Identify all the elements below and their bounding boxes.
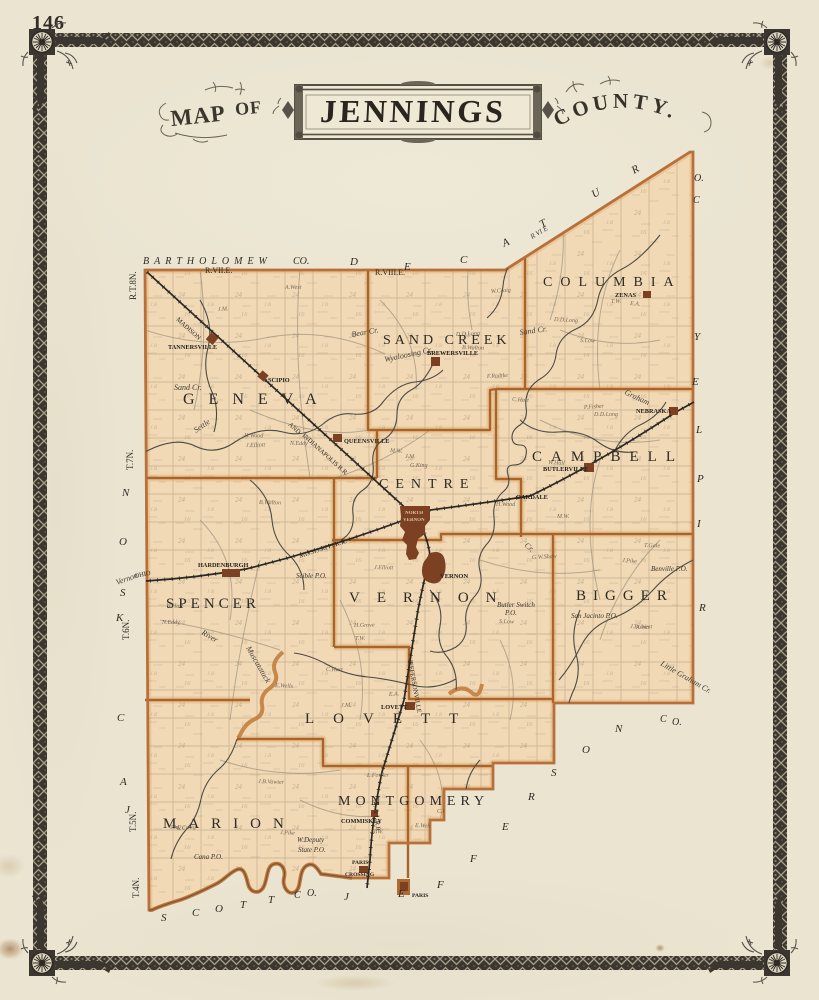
svg-text:VERNON: VERNON bbox=[403, 518, 425, 523]
svg-text:BIGGER: BIGGER bbox=[576, 588, 674, 604]
svg-text:D.D.Long: D.D.Long bbox=[593, 412, 618, 418]
svg-text:BREWERSVILLE: BREWERSVILLE bbox=[427, 350, 478, 357]
svg-text:SCIPIO: SCIPIO bbox=[268, 377, 290, 384]
svg-text:E.A.: E.A. bbox=[388, 691, 400, 698]
svg-text:E: E bbox=[397, 888, 405, 900]
svg-text:S.Low: S.Low bbox=[580, 338, 595, 345]
svg-text:NORTH: NORTH bbox=[405, 511, 423, 516]
svg-text:CENTRE: CENTRE bbox=[379, 477, 475, 492]
svg-text:TANNERSVILLE: TANNERSVILLE bbox=[168, 344, 217, 351]
svg-text:MARION: MARION bbox=[163, 816, 296, 832]
svg-text:G.King: G.King bbox=[410, 463, 428, 469]
svg-text:State P.O.: State P.O. bbox=[298, 846, 326, 854]
svg-text:E: E bbox=[403, 261, 411, 273]
svg-text:Benville P.O.: Benville P.O. bbox=[651, 565, 688, 573]
svg-text:J.Elliott: J.Elliott bbox=[374, 565, 394, 571]
svg-text:K: K bbox=[115, 612, 124, 624]
svg-text:J.B.Vawter: J.B.Vawter bbox=[258, 779, 285, 786]
svg-text:CROSSING: CROSSING bbox=[345, 872, 375, 878]
svg-text:L.Fowler: L.Fowler bbox=[366, 773, 390, 779]
svg-text:OF: OF bbox=[234, 97, 263, 119]
svg-text:P: P bbox=[696, 473, 704, 485]
svg-text:SPENCER: SPENCER bbox=[166, 596, 260, 612]
svg-text:R.T.8N.: R.T.8N. bbox=[128, 271, 138, 300]
svg-text:E: E bbox=[501, 821, 509, 833]
svg-text:R.VII.E.: R.VII.E. bbox=[205, 266, 232, 275]
svg-text:VERNON: VERNON bbox=[349, 590, 514, 606]
svg-text:Butler Switch: Butler Switch bbox=[497, 601, 535, 609]
svg-text:C: C bbox=[660, 714, 667, 725]
svg-text:HARDENBURGH: HARDENBURGH bbox=[198, 562, 248, 569]
svg-text:OAKDALE: OAKDALE bbox=[516, 494, 548, 501]
svg-text:LOVETT: LOVETT bbox=[381, 704, 408, 711]
svg-text:F: F bbox=[469, 853, 477, 865]
svg-text:N: N bbox=[614, 723, 623, 735]
svg-text:CAMPBELL: CAMPBELL bbox=[532, 449, 684, 465]
svg-text:N: N bbox=[121, 487, 130, 499]
svg-text:J.M.: J.M. bbox=[341, 703, 352, 709]
svg-text:T.4N.: T.4N. bbox=[131, 878, 141, 898]
svg-text:J.Pike: J.Pike bbox=[622, 558, 638, 565]
svg-text:L: L bbox=[695, 424, 702, 436]
svg-text:H.Wood: H.Wood bbox=[495, 502, 516, 508]
svg-text:N.Eddy: N.Eddy bbox=[289, 441, 308, 447]
svg-text:GENEVA: GENEVA bbox=[183, 391, 331, 408]
svg-text:CO.: CO. bbox=[293, 256, 309, 267]
svg-text:R: R bbox=[698, 602, 706, 614]
svg-text:F: F bbox=[436, 879, 444, 891]
svg-text:A: A bbox=[119, 776, 127, 788]
svg-text:O.: O. bbox=[307, 888, 317, 899]
svg-text:A.West: A.West bbox=[284, 285, 302, 291]
svg-text:MONTGOMERY: MONTGOMERY bbox=[338, 794, 489, 809]
svg-text:QUEENSVILLE: QUEENSVILLE bbox=[344, 438, 390, 445]
svg-text:D: D bbox=[349, 256, 358, 268]
svg-text:Cana P.O.: Cana P.O. bbox=[194, 853, 223, 861]
svg-text:T.7N.: T.7N. bbox=[125, 450, 135, 470]
svg-text:H.Grove: H.Grove bbox=[353, 623, 375, 629]
svg-text:PARIS: PARIS bbox=[412, 893, 428, 899]
svg-text:LOVETT: LOVETT bbox=[305, 711, 477, 727]
svg-text:S: S bbox=[120, 587, 126, 599]
svg-text:O: O bbox=[119, 536, 127, 548]
svg-text:C.Hart: C.Hart bbox=[512, 397, 529, 404]
svg-text:PARIS: PARIS bbox=[352, 860, 368, 866]
svg-text:NEBRASKA: NEBRASKA bbox=[636, 408, 671, 415]
svg-text:San Jacinto P.O.: San Jacinto P.O. bbox=[571, 612, 618, 620]
svg-text:E.Wells: E.Wells bbox=[274, 683, 294, 690]
svg-text:F.Radtke: F.Radtke bbox=[486, 373, 509, 380]
svg-text:Scible P.O.: Scible P.O. bbox=[296, 572, 327, 580]
svg-text:COLUMBIA: COLUMBIA bbox=[543, 275, 682, 290]
svg-text:C: C bbox=[693, 195, 700, 206]
svg-text:E.A.: E.A. bbox=[629, 301, 641, 308]
svg-text:C.Hart: C.Hart bbox=[326, 667, 343, 673]
svg-text:S: S bbox=[551, 767, 557, 779]
svg-text:C: C bbox=[192, 907, 200, 919]
svg-text:T: T bbox=[240, 899, 247, 911]
svg-text:J.Elliott: J.Elliott bbox=[246, 442, 266, 449]
svg-text:R: R bbox=[527, 791, 535, 803]
svg-text:B.Walton: B.Walton bbox=[259, 500, 281, 506]
svg-text:P.O.: P.O. bbox=[504, 609, 517, 617]
svg-text:A.West: A.West bbox=[635, 624, 653, 631]
svg-text:C: C bbox=[117, 712, 125, 724]
svg-text:C: C bbox=[294, 890, 301, 901]
svg-text:VERNON: VERNON bbox=[440, 573, 468, 580]
svg-text:ZENAS: ZENAS bbox=[615, 292, 636, 299]
svg-text:C: C bbox=[460, 254, 468, 266]
svg-text:BUTLERVILLE: BUTLERVILLE bbox=[543, 466, 588, 473]
svg-text:E: E bbox=[691, 376, 699, 388]
svg-text:SAND CREEK: SAND CREEK bbox=[383, 333, 511, 348]
svg-text:N.Eddy: N.Eddy bbox=[161, 620, 180, 626]
svg-text:O: O bbox=[582, 744, 590, 756]
svg-text:Sand Cr.: Sand Cr. bbox=[174, 383, 202, 392]
svg-text:O.: O. bbox=[694, 173, 704, 184]
svg-text:J.M.: J.M. bbox=[218, 306, 229, 313]
svg-text:S: S bbox=[161, 912, 167, 924]
svg-text:T: T bbox=[268, 894, 275, 906]
svg-text:T.W.: T.W. bbox=[355, 636, 365, 642]
svg-text:H.Wood: H.Wood bbox=[243, 433, 264, 439]
svg-text:W.Deputy: W.Deputy bbox=[297, 836, 325, 844]
svg-text:J.M.: J.M. bbox=[405, 454, 416, 460]
svg-text:R.VIII.E.: R.VIII.E. bbox=[375, 268, 405, 277]
svg-text:S.Low: S.Low bbox=[499, 619, 514, 626]
svg-text:O.: O. bbox=[672, 717, 682, 728]
svg-text:O: O bbox=[215, 903, 223, 915]
svg-text:M.W.: M.W. bbox=[389, 448, 403, 455]
svg-text:JENNINGS: JENNINGS bbox=[319, 93, 507, 129]
svg-text:T.W.: T.W. bbox=[611, 299, 621, 305]
svg-text:T.Gale: T.Gale bbox=[644, 543, 660, 549]
svg-text:M.W.: M.W. bbox=[556, 514, 569, 520]
